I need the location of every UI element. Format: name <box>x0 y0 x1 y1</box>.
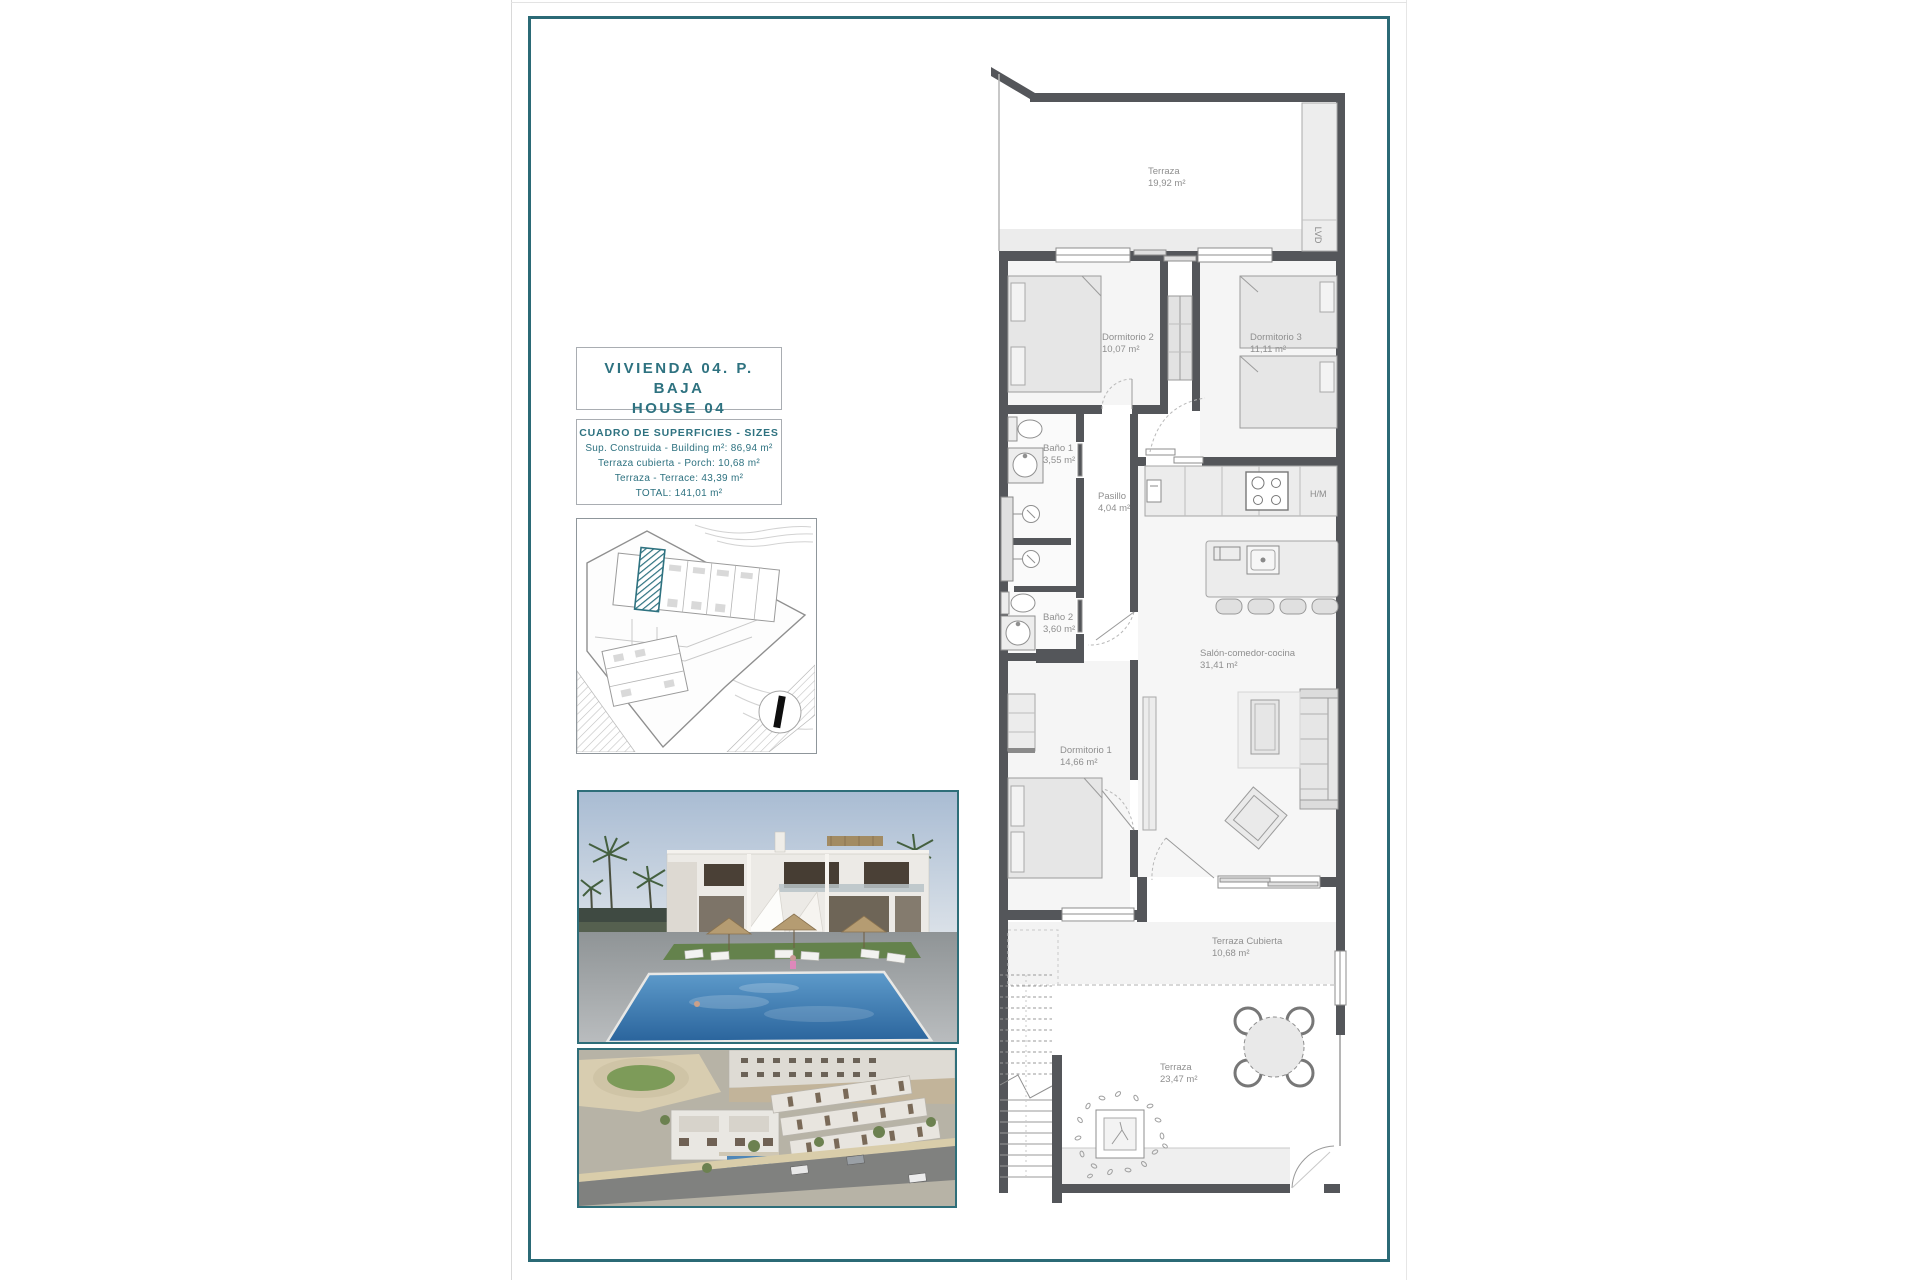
bathroom-2-fixtures <box>1001 592 1035 650</box>
svg-text:14,66 m²: 14,66 m² <box>1060 757 1098 768</box>
sheet-right-edge <box>1406 0 1407 1280</box>
sheet-left-edge <box>511 0 512 1280</box>
sizes-row-total: TOTAL: 141,01 m² <box>577 486 781 501</box>
svg-text:10,68 m²: 10,68 m² <box>1212 948 1250 959</box>
sizes-row-terrace: Terraza - Terrace: 43,39 m² <box>577 471 781 486</box>
floor-plan: LVD <box>989 60 1391 1210</box>
svg-text:3,60 m²: 3,60 m² <box>1043 624 1075 635</box>
laundry-column: LVD <box>1302 103 1337 251</box>
swimming-pool <box>607 972 931 1042</box>
room-label-pasillo: Pasillo <box>1098 491 1126 502</box>
tv-unit <box>1143 697 1156 830</box>
render-aerial-illustration <box>579 1050 955 1206</box>
title-spanish: VIVIENDA 04. P. BAJA <box>577 359 781 399</box>
svg-text:10,07 m²: 10,07 m² <box>1102 344 1140 355</box>
room-label-terraza-cubierta: Terraza Cubierta <box>1212 936 1283 947</box>
render-pool-illustration <box>579 792 957 1042</box>
render-aerial-view <box>577 1048 957 1208</box>
render-pool-view <box>577 790 959 1044</box>
room-label-salon: Salón-comedor-cocina <box>1200 648 1296 659</box>
room-label-bano-1: Baño 1 <box>1043 443 1073 454</box>
sizes-heading: CUADRO DE SUPERFICIES - SIZES <box>577 426 781 441</box>
sofa <box>1300 689 1338 809</box>
room-label-dormitorio-1: Dormitorio 1 <box>1060 745 1112 756</box>
floor-plan-drawing: LVD <box>989 60 1391 1210</box>
coffee-table <box>1238 692 1300 768</box>
sheet-top-edge <box>511 2 1407 3</box>
page: VIVIENDA 04. P. BAJA HOUSE 04 CUADRO DE … <box>0 0 1920 1280</box>
site-north-marker <box>759 691 801 733</box>
bathroom-1-fixtures <box>1008 417 1043 483</box>
room-label-dormitorio-2: Dormitorio 2 <box>1102 332 1154 343</box>
svg-text:23,47 m²: 23,47 m² <box>1160 1074 1198 1085</box>
site-plan-drawing <box>577 519 815 752</box>
sizes-row-porch: Terraza cubierta - Porch: 10,68 m² <box>577 456 781 471</box>
swimmer <box>694 1001 700 1007</box>
kitchen-island <box>1206 541 1338 614</box>
bed-dormitorio-1 <box>1008 778 1102 878</box>
kitchen-counter: H/M <box>1145 466 1337 516</box>
svg-text:4,04 m²: 4,04 m² <box>1098 503 1130 514</box>
appliance-label: H/M <box>1310 489 1327 499</box>
sizes-row-building: Sup. Construida - Building m²: 86,94 m² <box>577 441 781 456</box>
svg-text:3,55 m²: 3,55 m² <box>1043 455 1075 466</box>
room-label-dormitorio-3: Dormitorio 3 <box>1250 332 1302 343</box>
laundry-label: LVD <box>1313 227 1323 244</box>
svg-text:19,92 m²: 19,92 m² <box>1148 178 1186 189</box>
outdoor-table-set <box>1234 1007 1314 1086</box>
site-plan <box>576 518 817 754</box>
pool-person <box>790 955 796 969</box>
closet-dormitorio-1 <box>1008 694 1035 753</box>
room-label-bano-2: Baño 2 <box>1043 612 1073 623</box>
bed-dormitorio-2 <box>1008 276 1101 392</box>
hall-wardrobe <box>1168 296 1192 380</box>
svg-text:31,41 m²: 31,41 m² <box>1200 660 1238 671</box>
room-label-terraza-top: Terraza <box>1148 166 1180 177</box>
hob <box>1246 472 1288 510</box>
sizes-table: CUADRO DE SUPERFICIES - SIZES Sup. Const… <box>576 419 782 505</box>
title-block: VIVIENDA 04. P. BAJA HOUSE 04 <box>576 347 782 410</box>
room-label-terraza-bottom: Terraza <box>1160 1062 1192 1073</box>
svg-text:11,11 m²: 11,11 m² <box>1250 344 1286 355</box>
title-english: HOUSE 04 <box>577 399 781 419</box>
round-table <box>1244 1017 1304 1077</box>
